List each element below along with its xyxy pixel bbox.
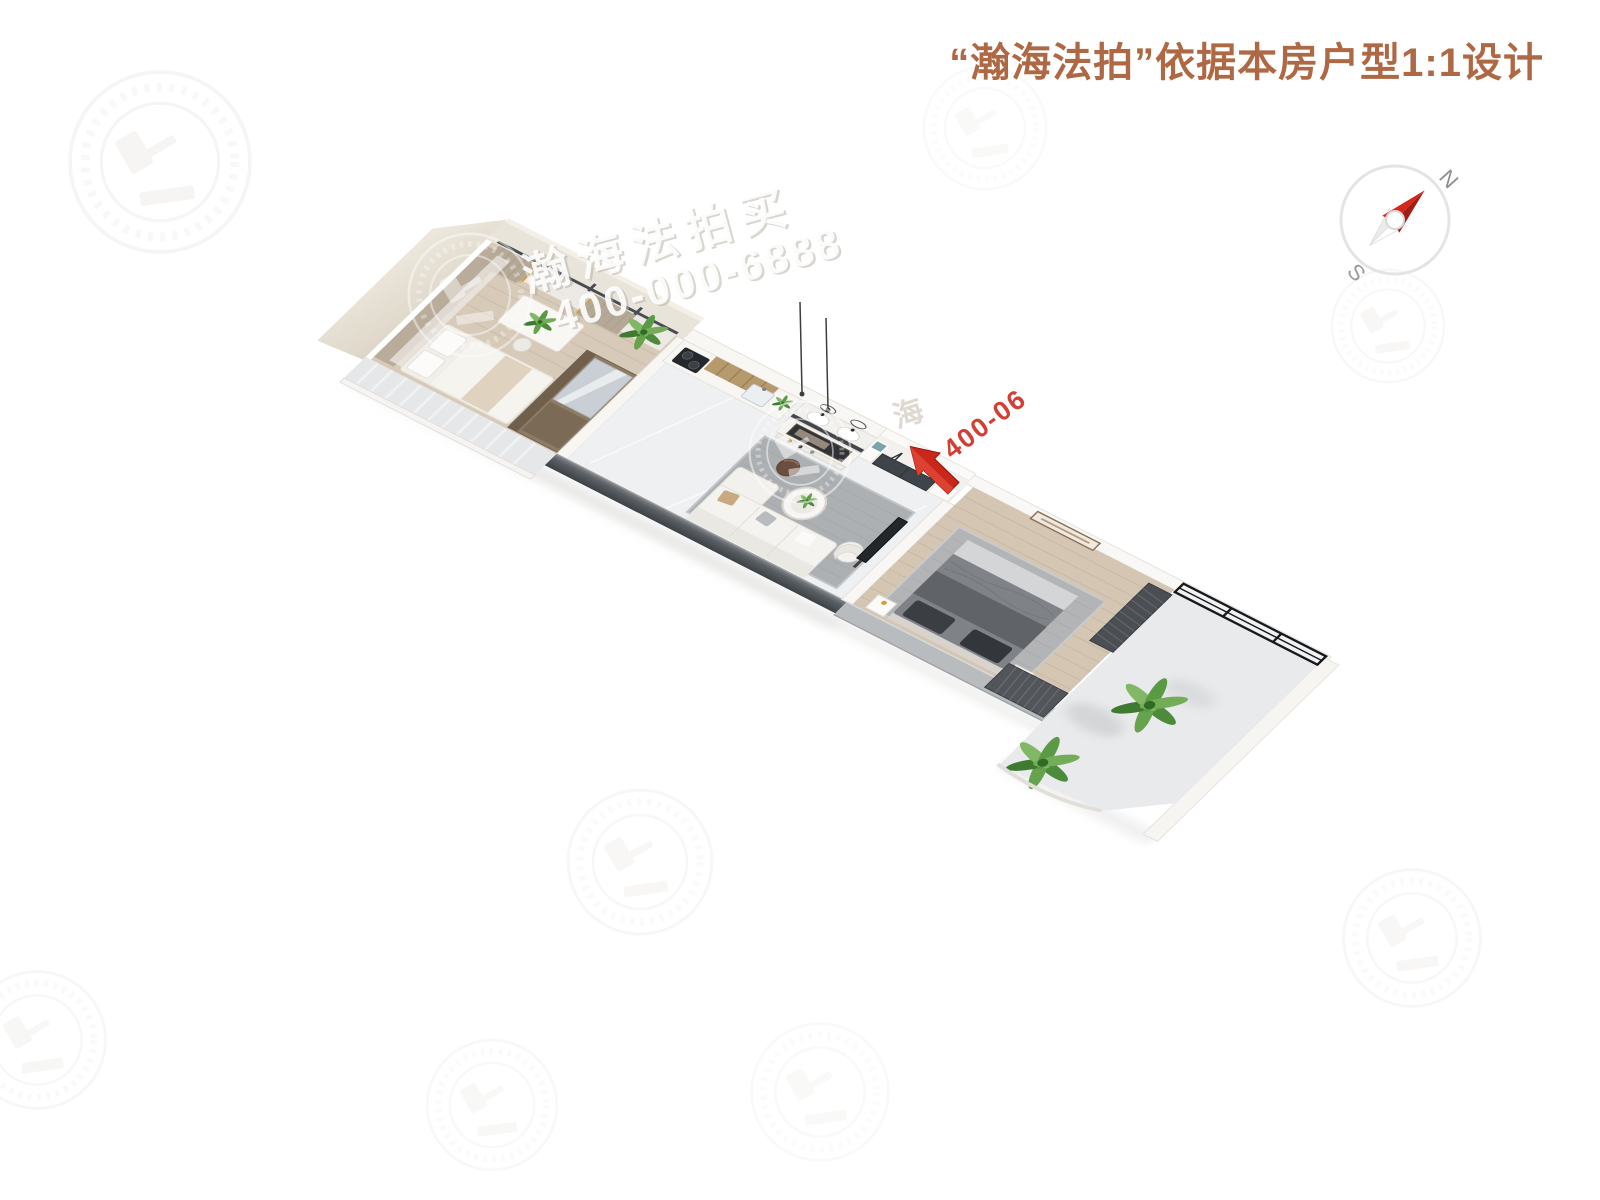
watermark-logo	[924, 67, 1046, 189]
watermark-logo	[1332, 270, 1444, 382]
watermark-brand-fragment: 海	[889, 394, 928, 435]
floor-plan-canvas: 瀚海法拍买 瀚海法拍买 400-000-6888 400-000-6888 海 …	[0, 0, 1600, 1200]
watermark-logo	[568, 790, 712, 934]
watermark-logo	[1344, 870, 1481, 1007]
apartment-plan	[258, 196, 1354, 850]
watermark-phone-fragment: 400-06	[938, 383, 1033, 465]
watermark-logo	[0, 972, 105, 1109]
floor-plan-page: “瀚海法拍”依据本房户型1:1设计	[0, 0, 1600, 1200]
watermark-logo	[427, 1040, 557, 1170]
compass-south-label: S	[1342, 259, 1370, 287]
compass-needle	[1361, 182, 1433, 254]
compass: N S	[1341, 165, 1463, 287]
watermark-logo	[70, 72, 250, 252]
watermark-logo	[752, 1024, 889, 1161]
